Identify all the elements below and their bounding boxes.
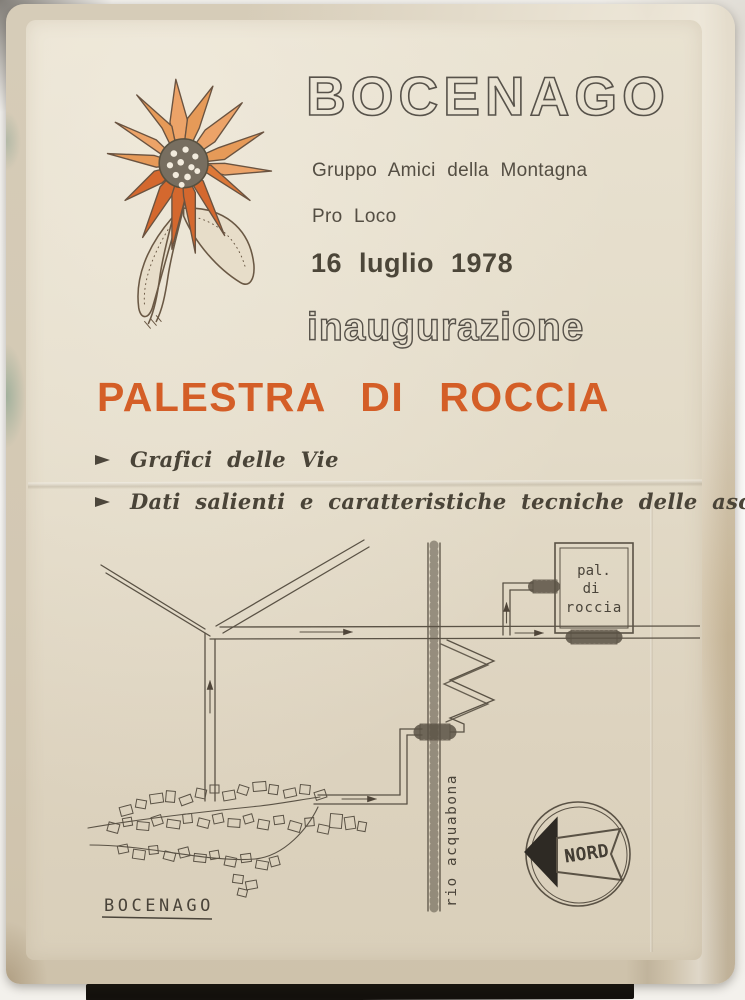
village-label: BOCENAGO: [104, 896, 214, 916]
bridge-building: [571, 630, 617, 644]
roads: [101, 540, 700, 804]
building-label-line-2: di: [583, 581, 600, 597]
headline: PALESTRA DI ROCCIA: [97, 374, 610, 421]
poster-title: BOCENAGO: [306, 64, 670, 128]
access-map: pal. di roccia rio acquabona BOCENAGO NO…: [60, 523, 700, 945]
zigzag-path: [441, 640, 494, 732]
backdrop-shadow-strip: [86, 982, 634, 1000]
poster-photo: BOCENAGO Gruppo Amici della Montagna Pro…: [0, 0, 745, 1000]
bullet-1-label: Grafici delle Vie: [130, 447, 339, 472]
right-arrow-icon: [95, 455, 110, 465]
village-label-group: BOCENAGO: [102, 896, 214, 919]
bullet-2-label: Dati salienti e caratteristiche tecniche…: [130, 489, 745, 514]
bridge-lower: [420, 724, 450, 740]
bullet-row-2: Dati salienti e caratteristiche tecniche…: [95, 489, 745, 514]
building-label-line-3: roccia: [566, 600, 623, 616]
building-label-line-1: pal.: [577, 563, 611, 579]
flower-center: [159, 139, 208, 188]
organization-line-1: Gruppo Amici della Montagna: [312, 160, 587, 182]
bridge-loop: [533, 580, 557, 593]
edelweiss-illustration: [86, 60, 291, 332]
event-title: inaugurazione: [307, 306, 584, 350]
organization-line-2: Pro Loco: [312, 206, 396, 228]
event-date: 16 luglio 1978: [311, 248, 513, 279]
bullet-row-1: Grafici delle Vie: [95, 447, 339, 472]
compass-label: NORD: [563, 841, 610, 867]
village-houses: [107, 781, 367, 897]
right-arrow-icon: [95, 497, 110, 507]
building-access-loop: [503, 583, 533, 635]
river-label: rio acquabona: [444, 774, 460, 907]
